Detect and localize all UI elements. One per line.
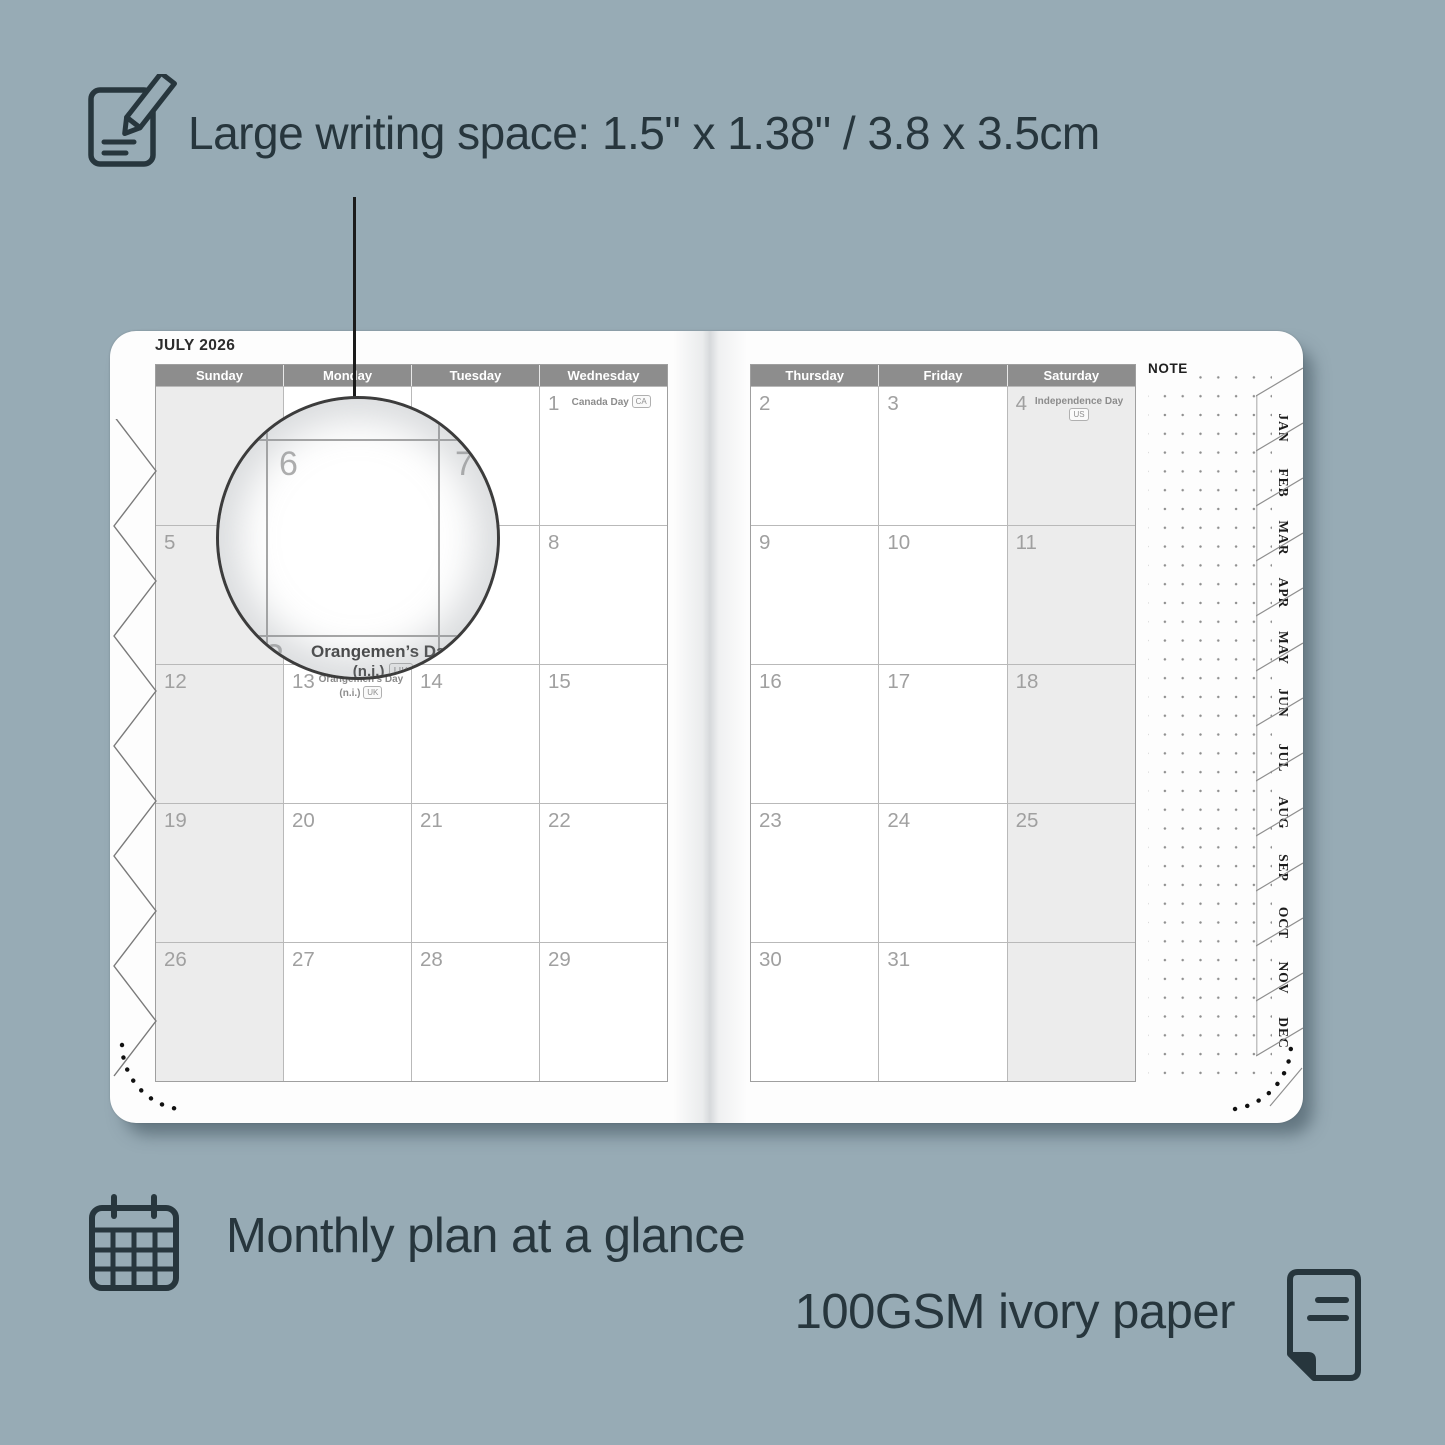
date-number: 27 [284, 943, 315, 972]
country-badge: UK [363, 686, 382, 699]
date-number: 20 [284, 804, 315, 833]
month-title: JULY 2026 [155, 337, 235, 355]
calendar-cell: 25 [1007, 804, 1135, 942]
month-tab-index: JANFEBMARAPRMAYJUNJULAUGSEPOCTNOVDEC [1256, 356, 1303, 1126]
date-number: 26 [156, 943, 187, 972]
calendar-week-row: 91011 [751, 525, 1135, 664]
calendar-week-row: 161718 [751, 664, 1135, 803]
calendar-cell: 13Orangemen’s Day (n.i.) UK [283, 665, 411, 803]
stitch-arc-right [1207, 1031, 1297, 1121]
day-header: Friday [878, 365, 1006, 386]
country-badge: UK [389, 663, 414, 679]
date-number: 18 [1008, 665, 1039, 694]
calendar-cell: 8 [539, 526, 667, 664]
holiday-label: Canada Day CA [559, 387, 667, 409]
calendar-week-row: 3031 [751, 942, 1135, 1081]
calendar-cell: 22 [539, 804, 667, 942]
date-number: 16 [751, 665, 782, 694]
magnified-gridline [219, 439, 497, 441]
calendar-cell: 31 [878, 943, 1006, 1081]
date-number: 21 [412, 804, 443, 833]
calendar-week-row: 234Independence Day US [751, 386, 1135, 525]
magnified-gridline [266, 399, 268, 677]
day-header: Wednesday [539, 365, 667, 386]
date-number: 4 [1008, 387, 1027, 416]
calendar-cell [1007, 943, 1135, 1081]
country-badge: CA [632, 395, 651, 408]
note-label: NOTE [1148, 361, 1194, 379]
calendar-cell: 11 [1007, 526, 1135, 664]
page-edge-zigzag [112, 419, 160, 1079]
calendar-week-row: 232425 [751, 803, 1135, 942]
month-tab: AUG [1276, 797, 1291, 830]
calendar-cell: 21 [411, 804, 539, 942]
date-number: 28 [412, 943, 443, 972]
calendar-cell: 23 [751, 804, 878, 942]
month-tab: MAY [1276, 631, 1291, 665]
calendar-cell: 16 [751, 665, 878, 803]
date-number: 10 [879, 526, 910, 555]
monthly-plan-caption: Monthly plan at a glance [226, 1208, 745, 1264]
day-header: Monday [283, 365, 411, 386]
calendar-cell: 17 [878, 665, 1006, 803]
right-calendar-grid: ThursdayFridaySaturday234Independence Da… [750, 364, 1136, 1082]
magnified-gridline [438, 399, 440, 677]
calendar-cell: 12 [156, 665, 283, 803]
paper-caption: 100GSM ivory paper [795, 1284, 1235, 1340]
magnified-date: 6 [279, 445, 298, 484]
calendar-cell: 29 [539, 943, 667, 1081]
calendar-icon [84, 1192, 184, 1294]
calendar-cell: 19 [156, 804, 283, 942]
date-number: 31 [879, 943, 910, 972]
date-number: 12 [156, 665, 187, 694]
date-number: 2 [751, 387, 770, 416]
month-tab: MAR [1276, 520, 1291, 555]
day-header: Sunday [156, 365, 283, 386]
calendar-cell: 4Independence Day US [1007, 387, 1135, 525]
country-badge: US [1069, 408, 1088, 421]
paper-sheet-icon [1278, 1266, 1370, 1384]
magnified-holiday: Orangemen’s Day (n.i.) UK [299, 642, 467, 680]
month-tab: NOV [1276, 962, 1291, 995]
page-gutter [673, 331, 747, 1123]
day-header-row: ThursdayFridaySaturday [751, 365, 1135, 386]
date-number: 15 [540, 665, 571, 694]
calendar-week-row: 26272829 [156, 942, 667, 1081]
date-number: 11 [1008, 526, 1037, 555]
calendar-cell: 14 [411, 665, 539, 803]
date-number: 22 [540, 804, 571, 833]
month-tab: OCT [1276, 907, 1291, 939]
calendar-cell: 28 [411, 943, 539, 1081]
calendar-week-row: 19202122 [156, 803, 667, 942]
date-number: 1 [540, 387, 559, 416]
month-tab: APR [1276, 578, 1291, 609]
date-number: 8 [540, 526, 559, 555]
note-dot-grid: NOTE [1148, 364, 1272, 1088]
calendar-cell: 9 [751, 526, 878, 664]
holiday-label: Independence Day US [1027, 387, 1135, 422]
date-number: 30 [751, 943, 782, 972]
date-number: 17 [879, 665, 910, 694]
day-header: Tuesday [411, 365, 539, 386]
calendar-cell: 2 [751, 387, 878, 525]
calendar-cell: 15 [539, 665, 667, 803]
magnifier-pointer-line [353, 197, 356, 400]
calendar-cell: 20 [283, 804, 411, 942]
day-header: Thursday [751, 365, 878, 386]
planner-product-image: Large writing space: 1.5" x 1.38" / 3.8 … [0, 0, 1445, 1445]
date-number: 25 [1008, 804, 1039, 833]
day-header-row: SundayMondayTuesdayWednesday [156, 365, 667, 386]
pencil-note-icon [82, 74, 178, 172]
calendar-cell: 18 [1007, 665, 1135, 803]
calendar-cell: 10 [878, 526, 1006, 664]
date-number: 3 [879, 387, 898, 416]
calendar-cell: 30 [751, 943, 878, 1081]
magnified-date: 7 [455, 445, 474, 484]
magnifier-circle: 6 7 13 Orangemen’s Day (n.i.) UK [216, 396, 500, 680]
date-number: 9 [751, 526, 770, 555]
stitch-arc-left [116, 1031, 206, 1121]
date-number: 19 [156, 804, 187, 833]
calendar-cell: 3 [878, 387, 1006, 525]
date-number: 24 [879, 804, 910, 833]
writing-space-caption: Large writing space: 1.5" x 1.38" / 3.8 … [188, 106, 1100, 160]
calendar-cell: 1Canada Day CA [539, 387, 667, 525]
calendar-cell: 27 [283, 943, 411, 1081]
day-header: Saturday [1007, 365, 1135, 386]
date-number: 23 [751, 804, 782, 833]
date-number: 29 [540, 943, 571, 972]
calendar-cell: 24 [878, 804, 1006, 942]
calendar-week-row: 1213Orangemen’s Day (n.i.) UK1415 [156, 664, 667, 803]
magnified-date: 13 [243, 637, 284, 679]
